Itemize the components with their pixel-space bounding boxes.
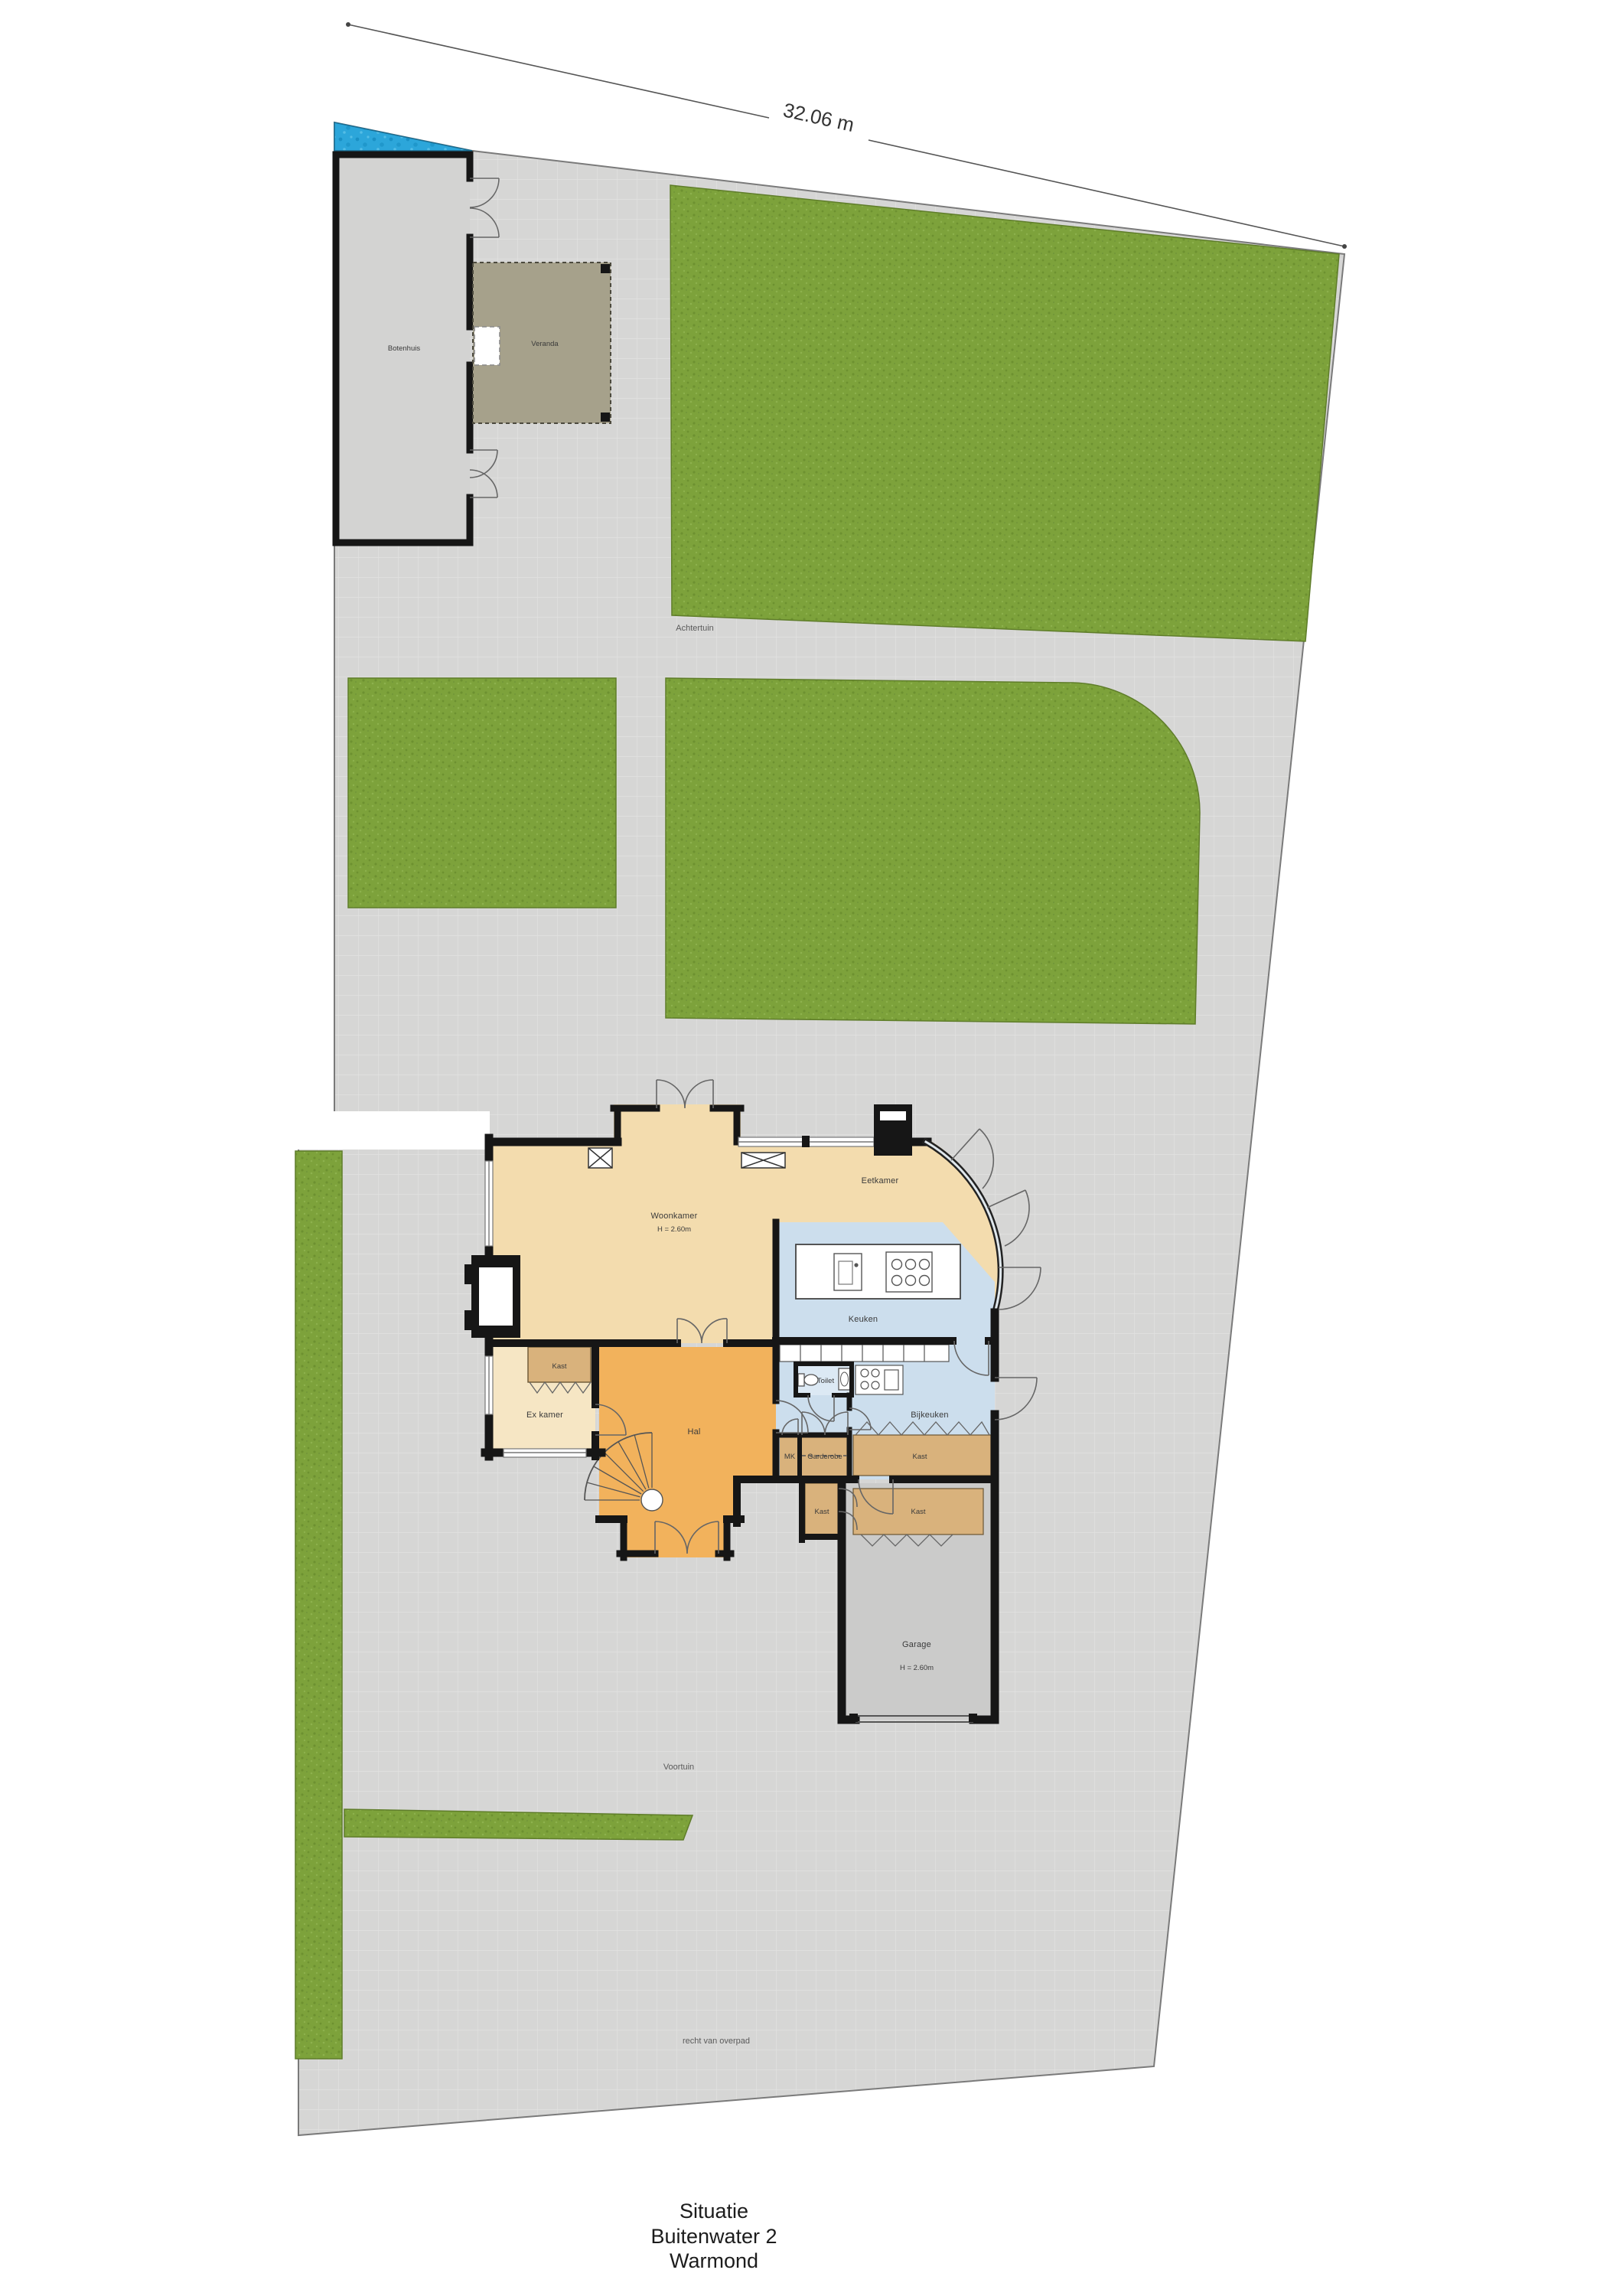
label-hal: Hal — [687, 1427, 700, 1437]
left-access-gap — [286, 1111, 490, 1150]
label-ex-kamer: Ex kamer — [526, 1411, 563, 1420]
label-kast-d: Kast — [552, 1362, 566, 1371]
veranda-post-ne — [601, 264, 610, 273]
title-situatie: Situatie — [680, 2200, 748, 2223]
label-bijkeuken: Bijkeuken — [911, 1411, 949, 1420]
grass-mid-right — [666, 678, 1200, 1024]
label-mk: MK — [784, 1453, 796, 1461]
dimension-label: 32.06 m — [781, 98, 856, 136]
veranda-post-se — [601, 413, 610, 422]
veranda: Veranda — [473, 263, 611, 423]
floorplan-page: 32.06 m Botenhuis Veranda — [0, 0, 1623, 2296]
title-city: Warmond — [670, 2249, 758, 2272]
veranda-label: Veranda — [531, 340, 559, 348]
label-kast-e: Kast — [912, 1453, 927, 1461]
island-hob — [886, 1252, 932, 1292]
label-woonkamer: Woonkamer — [651, 1212, 698, 1221]
label-kast-c: Kast — [814, 1508, 829, 1516]
grass-achtertuin — [670, 185, 1339, 641]
toilet-bowl — [804, 1375, 818, 1385]
label-toilet: Toilet — [817, 1377, 835, 1385]
label-woonkamer-height: H = 2.60m — [657, 1225, 691, 1234]
site-plan-svg: 32.06 m Botenhuis Veranda — [0, 0, 1623, 2296]
bijkeuken-counter — [780, 1345, 949, 1362]
botenhuis-label: Botenhuis — [388, 344, 421, 353]
bijkeuken-appliances — [855, 1365, 903, 1394]
grass-hedge-left — [295, 1151, 342, 2059]
label-keuken: Keuken — [849, 1315, 878, 1324]
grass-mid-left — [348, 678, 616, 908]
water — [334, 122, 472, 151]
bay2-pier — [874, 1104, 912, 1156]
label-achtertuin: Achtertuin — [676, 624, 714, 633]
label-garage-height: H = 2.60m — [900, 1664, 934, 1672]
kitchen-island — [796, 1244, 960, 1299]
veranda-step — [474, 327, 500, 365]
label-voortuin: Voortuin — [663, 1763, 694, 1772]
exterior-notch — [737, 1483, 802, 1541]
label-garage: Garage — [902, 1640, 931, 1649]
label-easement: recht van overpad — [683, 2037, 750, 2046]
label-garderobe: Garderobe — [807, 1453, 842, 1461]
label-eetkamer: Eetkamer — [862, 1176, 899, 1186]
title-block: Situatie Buitenwater 2 Warmond — [650, 2200, 777, 2272]
label-kast-f: Kast — [911, 1508, 925, 1516]
title-address: Buitenwater 2 — [650, 2225, 777, 2248]
chimney — [464, 1255, 520, 1338]
toilet-tank — [798, 1374, 804, 1386]
